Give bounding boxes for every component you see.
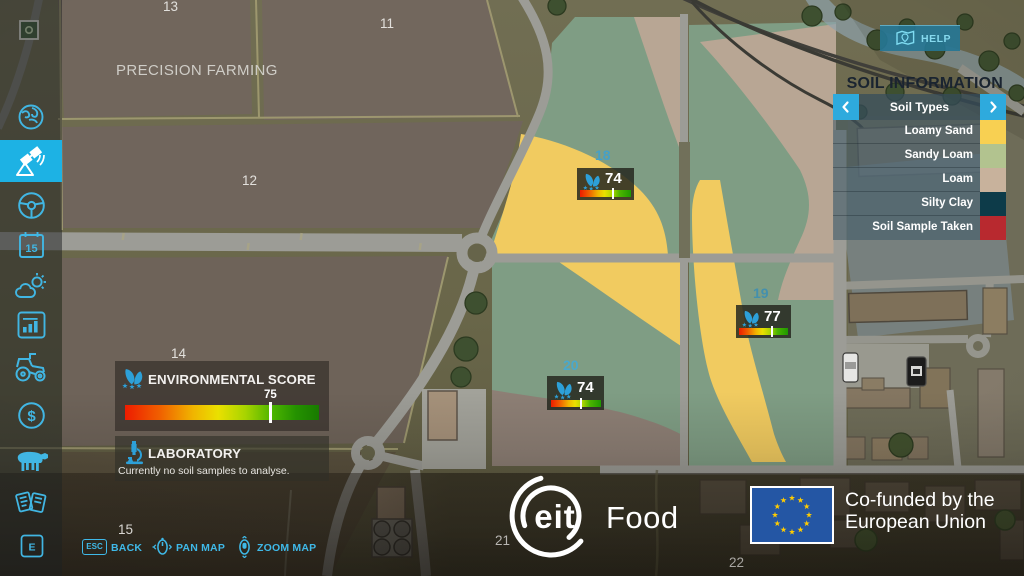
svg-text:$: $ xyxy=(27,408,36,425)
svg-text:15: 15 xyxy=(25,243,37,255)
svg-text:eit: eit xyxy=(534,498,576,535)
svg-text:Food: Food xyxy=(606,500,679,535)
svg-text:E: E xyxy=(28,542,35,554)
